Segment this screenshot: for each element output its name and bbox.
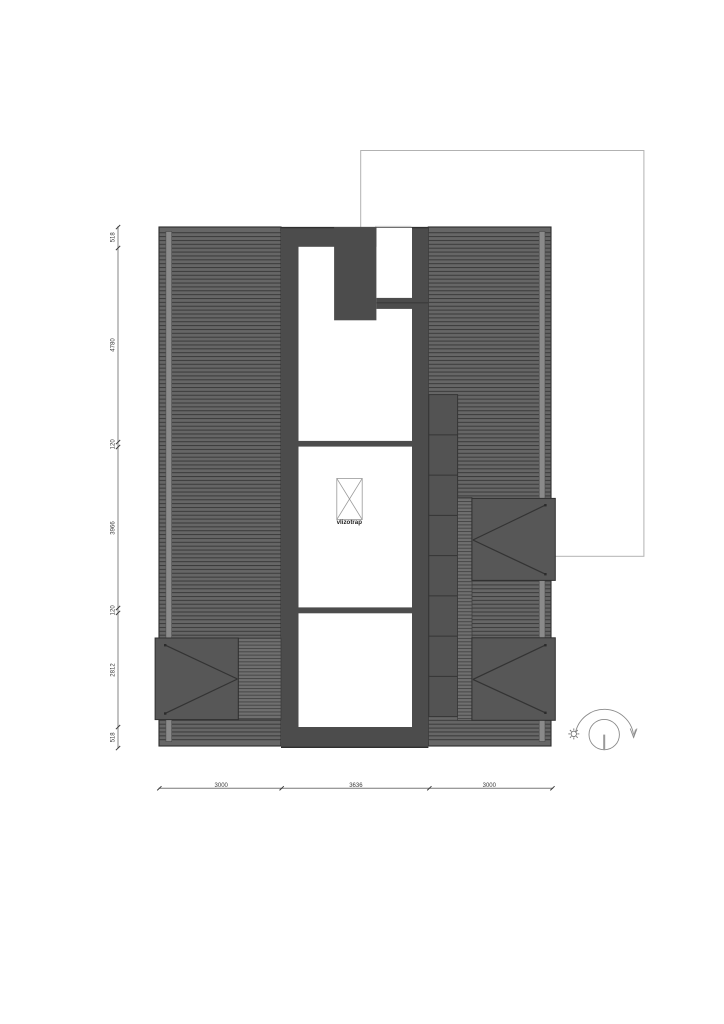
- svg-text:vlizotrap: vlizotrap: [337, 519, 363, 526]
- svg-text:3636: 3636: [349, 783, 363, 789]
- svg-text:120: 120: [110, 605, 116, 616]
- svg-text:3966: 3966: [110, 521, 116, 535]
- svg-text:3000: 3000: [215, 783, 229, 789]
- svg-text:518: 518: [110, 232, 116, 243]
- svg-text:4780: 4780: [110, 338, 116, 352]
- svg-text:3000: 3000: [483, 783, 497, 789]
- svg-text:2812: 2812: [110, 663, 116, 677]
- svg-text:518: 518: [110, 732, 116, 743]
- svg-text:120: 120: [110, 439, 116, 450]
